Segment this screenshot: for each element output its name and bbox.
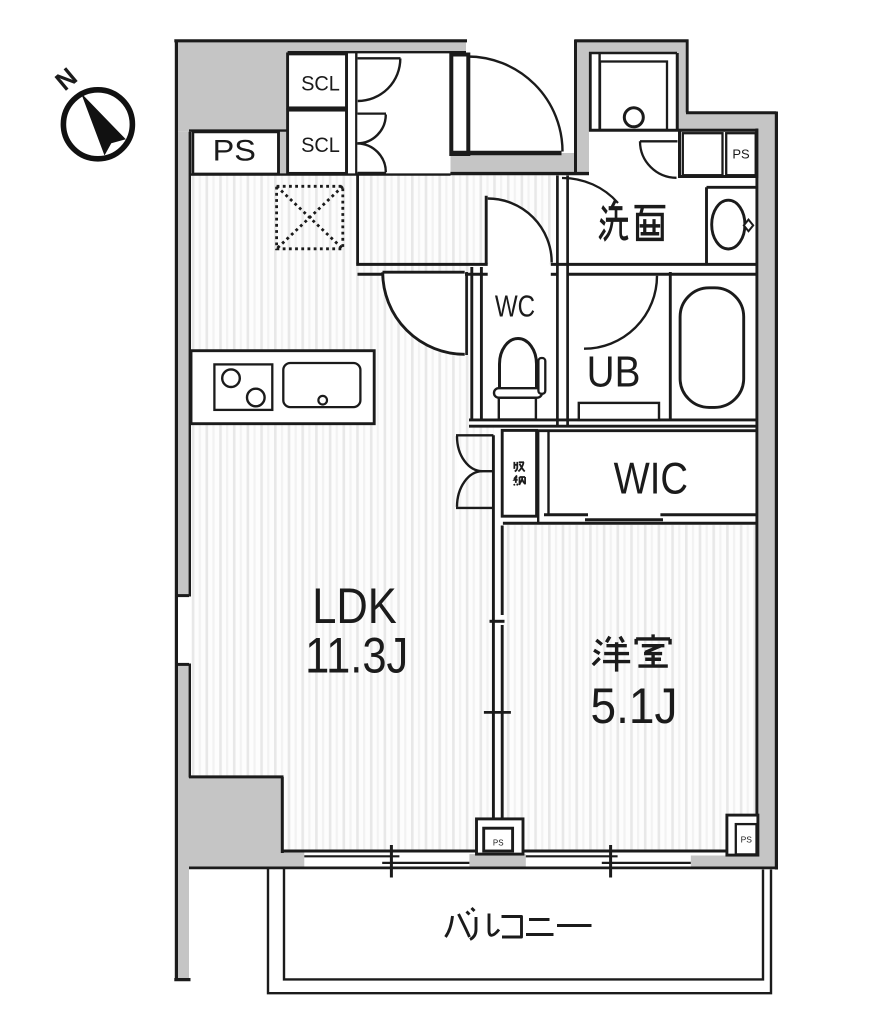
svg-text:SCL: SCL	[301, 72, 340, 96]
svg-text:PS: PS	[493, 839, 504, 848]
svg-text:UB: UB	[587, 346, 641, 396]
svg-text:11.3J: 11.3J	[305, 628, 408, 683]
svg-text:PS: PS	[732, 147, 750, 162]
svg-text:PS: PS	[213, 134, 256, 167]
svg-text:5.1J: 5.1J	[591, 679, 678, 734]
svg-text:SCL: SCL	[301, 134, 340, 158]
svg-text:PS: PS	[741, 835, 753, 845]
svg-text:WIC: WIC	[614, 453, 688, 503]
svg-text:LDK: LDK	[312, 578, 397, 633]
svg-text:WC: WC	[495, 289, 535, 324]
